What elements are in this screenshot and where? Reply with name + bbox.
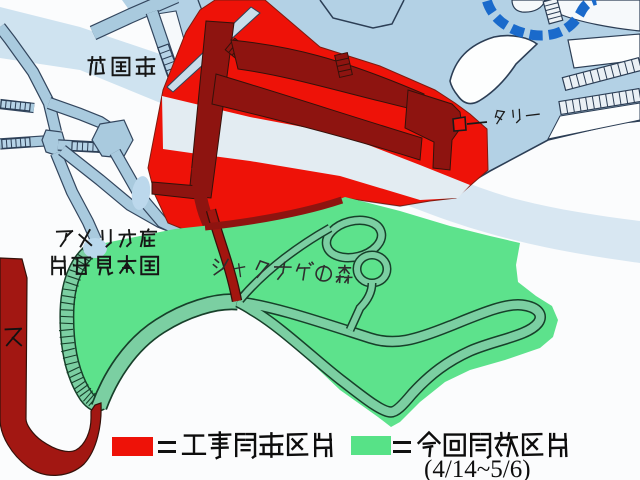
svg-text:(4/14~5/6): (4/14~5/6) (424, 456, 531, 480)
